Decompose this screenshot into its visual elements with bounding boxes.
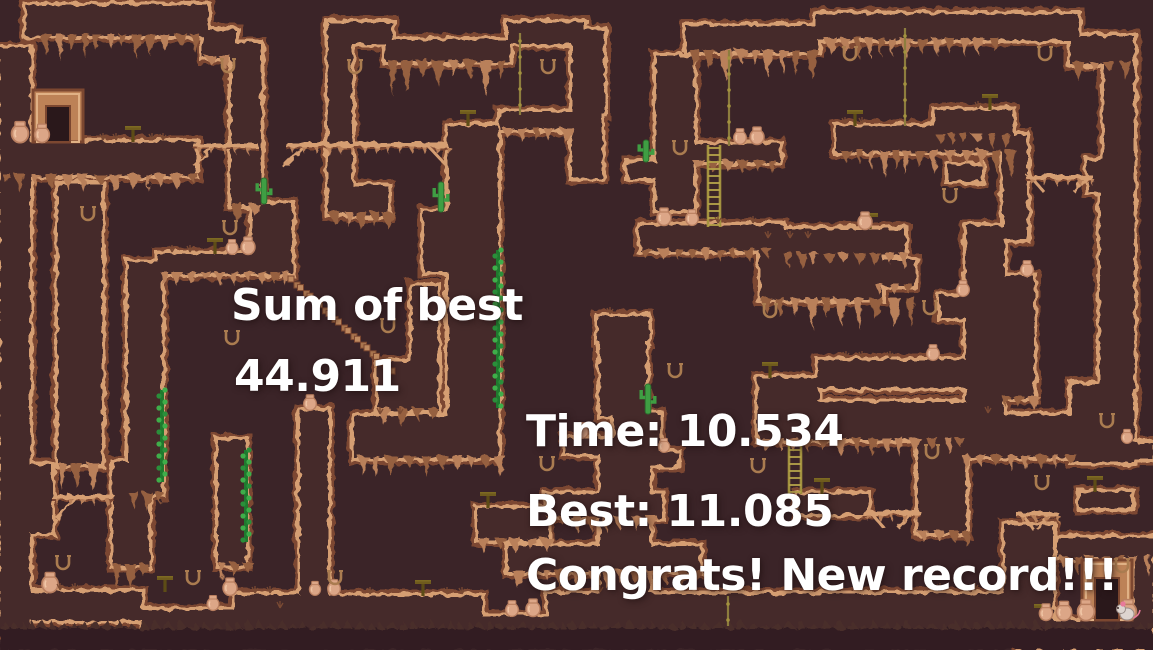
horseshoe-icon (540, 60, 556, 73)
horseshoe-icon (185, 571, 201, 584)
run-best-text: Best: 11.085 (526, 489, 833, 535)
horseshoe-icon (222, 221, 238, 234)
pot-sprite (223, 578, 237, 596)
pot-sprite (750, 127, 764, 145)
pot-sprite (226, 240, 238, 255)
sum-of-best-value: 44.911 (234, 354, 401, 400)
horseshoe-icon (55, 556, 71, 569)
horseshoe-icon (750, 459, 766, 472)
stalactite-drips (218, 563, 254, 580)
horseshoe-icon (842, 47, 858, 60)
pot-sprite (207, 596, 219, 611)
bridge-platform (52, 497, 114, 518)
run-time-text: Time: 10.534 (526, 409, 844, 455)
pot-sprite (927, 345, 940, 361)
pot-sprite (1021, 261, 1034, 277)
horseshoe-icon (922, 301, 938, 314)
pot-sprite (526, 599, 540, 617)
horseshoe-icon (942, 189, 958, 202)
horseshoe-icon (1037, 47, 1053, 60)
game-screen[interactable]: Sum of best 44.911 Time: 10.534 Best: 11… (0, 0, 1153, 650)
table-sprite (157, 576, 173, 592)
horseshoe-icon (539, 457, 555, 470)
horseshoe-icon (667, 364, 683, 377)
run-congrats-text: Congrats! New record!!! (526, 553, 1118, 599)
pot-sprite (506, 601, 519, 617)
stalactite-drips (58, 463, 100, 492)
pot-sprite (42, 572, 58, 592)
horseshoe-icon (224, 331, 240, 344)
horseshoe-icon (1034, 476, 1050, 489)
stalactite-drips (328, 212, 395, 230)
sum-of-best-label: Sum of best (231, 283, 523, 329)
pot-sprite (734, 129, 747, 145)
stalactite-drips (760, 298, 916, 329)
bridge-platform (284, 145, 451, 168)
